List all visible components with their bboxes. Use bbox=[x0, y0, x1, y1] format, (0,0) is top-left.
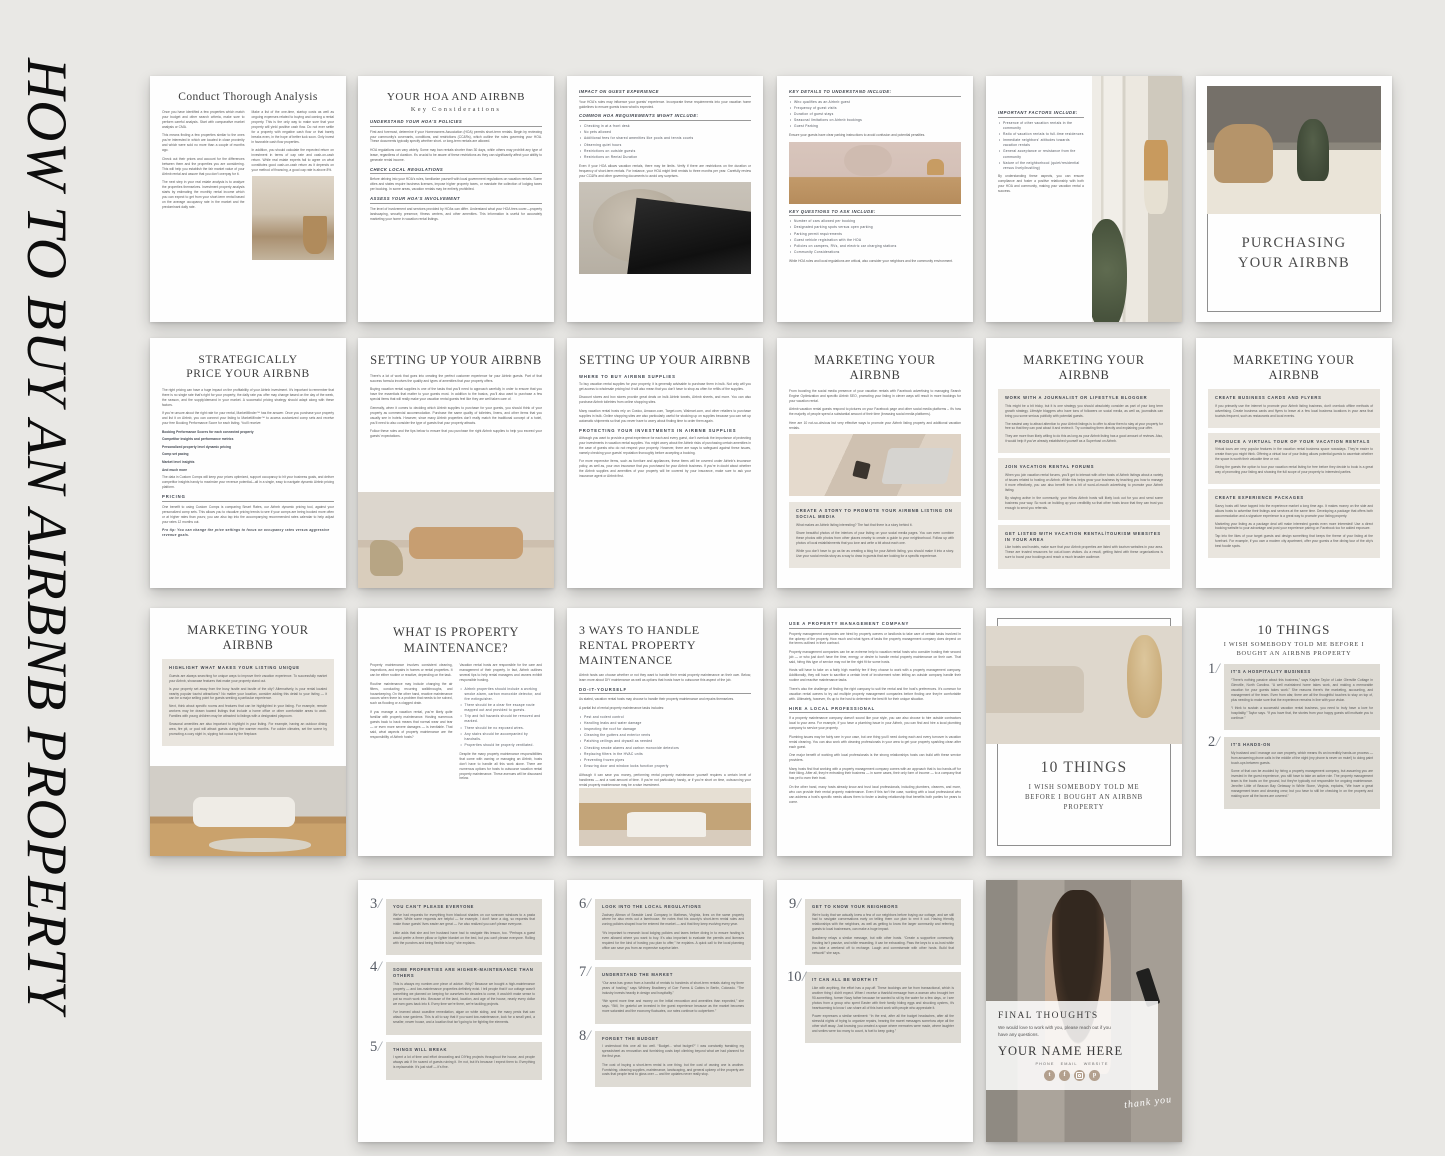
paragraph: The cost of buying a short-term rental i… bbox=[602, 1063, 744, 1078]
paragraph: Your HOA's rules may influence your gues… bbox=[579, 100, 751, 110]
contact-website-label: WEBSITE bbox=[1084, 1062, 1109, 1066]
white-sofa-photo bbox=[150, 766, 346, 856]
cover-title-block: 10 THINGS I WISH SOMEBODY TOLD ME BEFORE… bbox=[1004, 758, 1164, 813]
paragraph: If a property maintenance company doesn'… bbox=[789, 716, 961, 731]
paragraph: Many hosts find that working with a prop… bbox=[789, 767, 961, 782]
item-number: 3 bbox=[370, 896, 382, 913]
bullet-item: Checking smoke alarms and carbon monoxid… bbox=[579, 746, 751, 751]
contact-email-label: EMAIL bbox=[1061, 1062, 1078, 1066]
bullet-item: Patching ceilings and drywall as needed bbox=[579, 739, 751, 744]
numbered-item: 8 FORGET THE BUDGET I understood this on… bbox=[595, 1031, 751, 1087]
facebook-icon[interactable]: f bbox=[1059, 1070, 1070, 1081]
paragraph: Although you want to provide a great exp… bbox=[579, 436, 751, 456]
paragraph: One major benefit of working with local … bbox=[789, 753, 961, 763]
bullet-item: Preventing frozen pipes bbox=[579, 758, 751, 763]
paragraph: “We spent more time and money on the ini… bbox=[602, 999, 744, 1014]
bullet-item: Replacing filters in the HVAC units bbox=[579, 752, 751, 757]
section-heading: USE A PROPERTY MANAGEMENT COMPANY bbox=[789, 621, 961, 629]
item-number: 2 bbox=[1208, 734, 1220, 751]
paragraph: We're lucky that we actually knew a few … bbox=[812, 913, 954, 933]
bullet-item: Any stairs should be accompanied by hand… bbox=[460, 732, 543, 742]
right-column: Vacation rental hosts are responsible fo… bbox=[460, 663, 543, 785]
item-box: IT'S A HOSPITALITY BUSINESS “There's not… bbox=[1224, 664, 1380, 730]
bullet-item: Pest and rodent control bbox=[579, 715, 751, 720]
section-heading: PRICING bbox=[162, 494, 334, 502]
section-heading: KEY DETAILS TO UNDERSTAND INCLUDE: bbox=[789, 89, 961, 97]
item-heading: SOME PROPERTIES ARE HIGHER-MAINTENANCE T… bbox=[393, 967, 535, 979]
paragraph: Hosts will have to take on a fairly high… bbox=[789, 668, 961, 683]
tan-sofa-photo bbox=[358, 492, 554, 588]
left-column: Once you have identified a few propertie… bbox=[162, 110, 245, 260]
page-subtitle: I WISH SOMEBODY TOLD ME BEFORE I BOUGHT … bbox=[1208, 640, 1380, 658]
tinted-section: HIGHLIGHT WHAT MAKES YOUR LISTING UNIQUE… bbox=[162, 659, 334, 746]
page-title: SETTING UP YOUR AIRBNB bbox=[370, 353, 542, 368]
page-title: MARKETING YOUR AIRBNB bbox=[162, 623, 334, 653]
item-heading: IT CAN ALL BE WORTH IT bbox=[812, 977, 954, 983]
numbered-item: 1 IT'S A HOSPITALITY BUSINESS “There's n… bbox=[1224, 664, 1380, 730]
page-marketing-cards-tours: MARKETING YOUR AIRBNB CREATE BUSINESS CA… bbox=[1196, 338, 1392, 588]
tinted-section: CREATE EXPERIENCE PACKAGES Savvy hosts w… bbox=[1208, 489, 1380, 558]
bullet-item: Designated parking spots versus open par… bbox=[789, 225, 961, 230]
tinted-section: CREATE A STORY TO PROMOTE YOUR AIRBNB LI… bbox=[789, 502, 961, 568]
two-column-layout: Once you have identified a few propertie… bbox=[162, 110, 334, 260]
paragraph: I spent a lot of time and effort decorat… bbox=[393, 1055, 535, 1070]
bullet-item: Nature of the neighborhood (quiet/reside… bbox=[998, 161, 1084, 171]
page-marketing-blogger-forums: MARKETING YOUR AIRBNB WORK WITH A JOURNA… bbox=[986, 338, 1182, 588]
two-column-layout: Property maintenance involves consistent… bbox=[370, 663, 542, 785]
item-box: LOOK INTO THE LOCAL REGULATIONS Zachary … bbox=[595, 899, 751, 960]
bullet-item: There should be no exposed wires. bbox=[460, 726, 543, 731]
bullet-item: Seasonal limitations on Airbnb bookings bbox=[789, 118, 961, 123]
item-heading: GET TO KNOW YOUR NEIGHBORS bbox=[812, 904, 954, 910]
final-thoughts-card: FINAL THOUGHTS We would love to work wit… bbox=[986, 1001, 1158, 1090]
page-title: MARKETING YOUR AIRBNB bbox=[1208, 353, 1380, 383]
page-title: MARKETING YOUR AIRBNB bbox=[789, 353, 961, 383]
paragraph: Buying vacation rental supplies is one o… bbox=[370, 387, 542, 402]
numbered-item: 4 SOME PROPERTIES ARE HIGHER-MAINTENANCE… bbox=[386, 962, 542, 1034]
page-title: MARKETING YOUR AIRBNB bbox=[998, 353, 1170, 383]
paragraph: Seasonal amenities are also important to… bbox=[169, 722, 327, 737]
section-heading: IMPORTANT FACTORS INCLUDE: bbox=[998, 110, 1084, 118]
tinted-section: WORK WITH A JOURNALIST OR LIFESTYLE BLOG… bbox=[998, 389, 1170, 453]
page-subtitle: Key Considerations bbox=[370, 106, 542, 113]
numbered-item: 2 IT'S HANDS-ON My husband and I manage … bbox=[1224, 737, 1380, 808]
paragraph: There's a lot of work that goes into cre… bbox=[370, 374, 542, 384]
page-setting-up-supplies: SETTING UP YOUR AIRBNB WHERE TO BUY AIRB… bbox=[567, 338, 763, 588]
tinted-section: GET LISTED WITH VACATION RENTAL/TOURISM … bbox=[998, 525, 1170, 570]
snow-porch-photo bbox=[1207, 86, 1381, 214]
bold-bullet: And much more bbox=[162, 468, 334, 473]
paragraph: Make a list of the one-time, startup cos… bbox=[252, 110, 335, 145]
paragraph: Zachary Altman of Seaside Land Company i… bbox=[602, 913, 744, 928]
paragraph: The easiest way to attract attention to … bbox=[1005, 422, 1163, 432]
box-heading: HIGHLIGHT WHAT MAKES YOUR LISTING UNIQUE bbox=[169, 665, 327, 671]
paragraph: The data in Custom Comps will keep your … bbox=[162, 475, 334, 490]
beige-sofa-pampas-photo bbox=[986, 626, 1182, 744]
page-what-is-property-maintenance: WHAT IS PROPERTY MAINTENANCE? Property m… bbox=[358, 608, 554, 856]
item-box: UNDERSTAND THE MARKET “Our area has grow… bbox=[595, 967, 751, 1023]
paragraph: Property management companies are hired … bbox=[789, 632, 961, 647]
bullet-item: Handling leaks and water damage bbox=[579, 721, 751, 726]
paragraph: Property maintenance involves consistent… bbox=[370, 663, 453, 678]
paragraph: Giving the guests the option to tour you… bbox=[1215, 465, 1373, 475]
box-heading: CREATE BUSINESS CARDS AND FLYERS bbox=[1215, 395, 1373, 401]
text-block: SETTING UP YOUR AIRBNB There's a lot of … bbox=[358, 338, 554, 439]
bullet-item: Cleaning the gutters and exterior vents bbox=[579, 733, 751, 738]
paragraph: If you primarily use the internet to pro… bbox=[1215, 404, 1373, 419]
bullet-item: Ensuring door and window locks function … bbox=[579, 764, 751, 769]
tinted-section: CREATE BUSINESS CARDS AND FLYERS If you … bbox=[1208, 389, 1380, 428]
key-questions-list: Number of cars allowed per booking Desig… bbox=[789, 219, 961, 255]
paragraph: Before delving into your HOA's rules, fa… bbox=[370, 177, 542, 192]
page-important-factors: IMPORTANT FACTORS INCLUDE: Presence of o… bbox=[986, 76, 1182, 322]
item-box: YOU CAN'T PLEASE EVERYONE We've had requ… bbox=[386, 899, 542, 955]
hoa-requirements-list: Checking in at a front desk No pets allo… bbox=[579, 124, 751, 160]
paragraph: They are more than likely willing to do … bbox=[1005, 434, 1163, 444]
paragraph: A partial list of rental property mainte… bbox=[579, 706, 751, 711]
section-heading: PROTECTING YOUR INVESTMENTS IN AIRBNB SU… bbox=[579, 428, 751, 433]
paragraph: Little adds that she and her husband hav… bbox=[393, 931, 535, 946]
numbered-item: 5 THINGS WILL BREAK I spent a lot of tim… bbox=[386, 1042, 542, 1080]
pinterest-icon[interactable]: p bbox=[1089, 1070, 1100, 1081]
box-heading: JOIN VACATION RENTAL FORUMS bbox=[1005, 464, 1163, 470]
paragraph: I understood this one all too well. “Bud… bbox=[602, 1044, 744, 1059]
paragraph: Marketing your listing as a package deal… bbox=[1215, 522, 1373, 532]
page-property-management-company: USE A PROPERTY MANAGEMENT COMPANY Proper… bbox=[777, 608, 973, 856]
paragraph: Plumbing issues may be fairly rare in yo… bbox=[789, 735, 961, 750]
paragraph: Ensure your guests have clear parking in… bbox=[789, 133, 961, 138]
text-block: 3 WAYS TO HANDLE RENTAL PROPERTY MAINTEN… bbox=[567, 608, 763, 788]
bullet-item: Frequency of guest visits bbox=[789, 106, 961, 111]
paragraph: This is always my number-one piece of ad… bbox=[393, 982, 535, 1007]
paragraph: On the other hand, many hosts already kn… bbox=[789, 785, 961, 805]
paragraph: When you join vacation rental forums, yo… bbox=[1005, 473, 1163, 493]
section-heading: COMMON HOA REQUIREMENTS MIGHT INCLUDE: bbox=[579, 113, 751, 121]
paragraph: The level of involvement and services pr… bbox=[370, 207, 542, 222]
paragraph: To buy vacation rental supplies for your… bbox=[579, 382, 751, 392]
page-hoa-key-considerations: YOUR HOA AND AIRBNB Key Considerations U… bbox=[358, 76, 554, 322]
paragraph: Like hotels and hostels, make sure that … bbox=[1005, 545, 1163, 560]
paragraph: Although it can save you money, performi… bbox=[579, 773, 751, 788]
paragraph: One benefit to using Custom Comps is com… bbox=[162, 505, 334, 525]
paragraph: Savvy hosts will have tapped into the ex… bbox=[1215, 504, 1373, 519]
page-final-thoughts: FINAL THOUGHTS We would love to work wit… bbox=[986, 880, 1182, 1142]
page-title: 3 WAYS TO HANDLE RENTAL PROPERTY MAINTEN… bbox=[579, 623, 751, 668]
item-box: GET TO KNOW YOUR NEIGHBORS We're lucky t… bbox=[805, 899, 961, 965]
numbered-item: 10 IT CAN ALL BE WORTH IT Like with anyt… bbox=[805, 972, 961, 1043]
bullet-item: Number of cars allowed per booking bbox=[789, 219, 961, 224]
section-heading: ASSESS YOUR HOA'S INVOLVEMENT bbox=[370, 196, 542, 204]
box-heading: WORK WITH A JOURNALIST OR LIFESTYLE BLOG… bbox=[1005, 395, 1163, 401]
paragraph: I've learned about coastline remediation… bbox=[393, 1010, 535, 1025]
paragraph: Property management companies can be an … bbox=[789, 650, 961, 665]
paragraph: Once you have identified a few propertie… bbox=[162, 110, 245, 130]
paragraph: Generally, when it comes to deciding whi… bbox=[370, 406, 542, 426]
numbered-item: 3 YOU CAN'T PLEASE EVERYONE We've had re… bbox=[386, 899, 542, 955]
item-heading: THINGS WILL BREAK bbox=[393, 1047, 535, 1053]
bullet-item: Policies on campers, RVs, and electric c… bbox=[789, 244, 961, 249]
paragraph: Routine maintenance may include changing… bbox=[370, 682, 453, 707]
paragraph: Many vacation rental hosts rely on Costc… bbox=[579, 409, 751, 424]
text-column: IMPORTANT FACTORS INCLUDE: Presence of o… bbox=[986, 76, 1092, 322]
box-heading: PRODUCE A VIRTUAL TOUR OF YOUR VACATION … bbox=[1215, 439, 1373, 445]
text-block: MARKETING YOUR AIRBNB HIGHLIGHT WHAT MAK… bbox=[150, 608, 346, 746]
bold-bullet: Market level insights bbox=[162, 460, 334, 465]
numbered-item: 9 GET TO KNOW YOUR NEIGHBORS We're lucky… bbox=[805, 899, 961, 965]
paragraph: Follow these rules and the tips below to… bbox=[370, 429, 542, 439]
bullet-item: Observing quiet hours bbox=[579, 143, 751, 148]
box-heading: GET LISTED WITH VACATION RENTAL/TOURISM … bbox=[1005, 531, 1163, 543]
paragraph: If you're unsure about the right rate fo… bbox=[162, 411, 334, 426]
paragraph: We would love to work with you, please r… bbox=[998, 1025, 1119, 1039]
tinted-section: PRODUCE A VIRTUAL TOUR OF YOUR VACATION … bbox=[1208, 433, 1380, 484]
pro-tip: Pro tip: You can change the price settin… bbox=[162, 528, 334, 538]
item-number: 1 bbox=[1208, 661, 1220, 678]
key-details-list: Who qualifies as an Airbnb guest Frequen… bbox=[789, 100, 961, 130]
diy-tasks-list: Pest and rodent control Handling leaks a… bbox=[579, 715, 751, 770]
item-box: SOME PROPERTIES ARE HIGHER-MAINTENANCE T… bbox=[386, 962, 542, 1034]
page-title: WHAT IS PROPERTY MAINTENANCE? bbox=[382, 625, 530, 656]
page-title: STRATEGICALLY PRICE YOUR AIRBNB bbox=[179, 353, 317, 382]
page-title: Conduct Thorough Analysis bbox=[162, 91, 334, 103]
paragraph: We've had requests for everything from b… bbox=[393, 913, 535, 928]
paragraph: “I think to sustain a successful vacatio… bbox=[1231, 706, 1373, 721]
section-heading: KEY QUESTIONS TO ASK INCLUDE: bbox=[789, 209, 961, 217]
box-heading: CREATE A STORY TO PROMOTE YOUR AIRBNB LI… bbox=[796, 508, 954, 520]
living-room-photo bbox=[252, 176, 335, 260]
item-heading: YOU CAN'T PLEASE EVERYONE bbox=[393, 904, 535, 910]
section-heading: HIRE A LOCAL PROFESSIONAL bbox=[789, 706, 961, 714]
paragraph: Airbnb vacation rental guests respond to… bbox=[789, 407, 961, 417]
paragraph: Vacation rental hosts are responsible fo… bbox=[460, 663, 543, 683]
bullet-item: Guest Parking bbox=[789, 124, 961, 129]
bullet-item: Properties should be properly ventilated… bbox=[460, 743, 543, 748]
item-box: THINGS WILL BREAK I spent a lot of time … bbox=[386, 1042, 542, 1080]
instagram-icon[interactable] bbox=[1074, 1070, 1085, 1081]
section-heading: CHECK LOCAL REGULATIONS bbox=[370, 167, 542, 175]
cover-title: 10 THINGS bbox=[1004, 758, 1164, 779]
page-marketing-highlight-unique: MARKETING YOUR AIRBNB HIGHLIGHT WHAT MAK… bbox=[150, 608, 346, 856]
ebook-vertical-title: HOW TO BUY AN AIRBNB PROPERTY bbox=[14, 58, 79, 1143]
paragraph: The right pricing can have a huge impact… bbox=[162, 388, 334, 408]
paragraph: Even if your HOA allows vacation rentals… bbox=[579, 164, 751, 179]
paragraph: “Our area has grown from a handful of re… bbox=[602, 981, 744, 996]
item-box: FORGET THE BUDGET I understood this one … bbox=[595, 1031, 751, 1087]
page-cover-purchasing-your-airbnb: PURCHASING YOUR AIRBNB bbox=[1196, 76, 1392, 322]
section-heading: IMPACT ON GUEST EXPERIENCE bbox=[579, 89, 751, 97]
phone-laptop-photo bbox=[789, 434, 961, 496]
cover-subtitle: I WISH SOMEBODY TOLD ME BEFORE I BOUGHT … bbox=[1017, 783, 1151, 814]
bullet-item: Checking in at a front desk bbox=[579, 124, 751, 129]
bullet-item: Who qualifies as an Airbnb guest bbox=[789, 100, 961, 105]
page-impact-on-guest-experience: IMPACT ON GUEST EXPERIENCE Your HOA's ru… bbox=[567, 76, 763, 322]
item-box: IT'S HANDS-ON My husband and I manage ou… bbox=[1224, 737, 1380, 808]
bullet-item: Restrictions on outside guests bbox=[579, 149, 751, 154]
paragraph: By understanding these aspects, you can … bbox=[998, 174, 1084, 194]
cover-title-block: PURCHASING YOUR AIRBNB bbox=[1207, 234, 1381, 273]
page-10-things-items-3-5: 3 YOU CAN'T PLEASE EVERYONE We've had re… bbox=[358, 880, 554, 1142]
paragraph: There's also the challenge of finding th… bbox=[789, 687, 961, 702]
page-10-things-items-6-8: 6 LOOK INTO THE LOCAL REGULATIONS Zachar… bbox=[567, 880, 763, 1142]
page-key-details-parking: KEY DETAILS TO UNDERSTAND INCLUDE: Who q… bbox=[777, 76, 973, 322]
split-layout: IMPORTANT FACTORS INCLUDE: Presence of o… bbox=[986, 76, 1182, 322]
paragraph: Power expresses a similar sentiment: “In… bbox=[812, 1014, 954, 1034]
section-heading: DO-IT-YOURSELF bbox=[579, 687, 751, 695]
cover-title: PURCHASING YOUR AIRBNB bbox=[1228, 234, 1360, 273]
paragraph: For more expensive items, such as furnit… bbox=[579, 459, 751, 479]
bullet-item: Restrictions on Rental Duration bbox=[579, 155, 751, 160]
paragraph: This might be a bit tricky, but it is on… bbox=[1005, 404, 1163, 419]
item-number: 7 bbox=[579, 964, 591, 981]
paragraph: First and foremost, determine if your Ho… bbox=[370, 130, 542, 145]
page-10-things-items-1-2: 10 THINGS I WISH SOMEBODY TOLD ME BEFORE… bbox=[1196, 608, 1392, 856]
paragraph: Check out their prices and account for t… bbox=[162, 157, 245, 177]
twitter-icon[interactable]: t bbox=[1044, 1070, 1055, 1081]
bullet-item: There should be a clear fire escape rout… bbox=[460, 703, 543, 713]
section-heading: WHERE TO BUY AIRBNB SUPPLIES bbox=[579, 374, 751, 379]
item-heading: LOOK INTO THE LOCAL REGULATIONS bbox=[602, 904, 744, 910]
bedroom-photo bbox=[579, 788, 751, 846]
item-box: IT CAN ALL BE WORTH IT Like with anythin… bbox=[805, 972, 961, 1043]
paragraph: Is your property set away from the busy … bbox=[169, 687, 327, 702]
bullet-item: Immediate neighbors' attitudes towards v… bbox=[998, 138, 1084, 148]
page-title: 10 THINGS bbox=[1208, 622, 1380, 638]
page-cover-10-things: 10 THINGS I WISH SOMEBODY TOLD ME BEFORE… bbox=[986, 608, 1182, 856]
page-3-ways-maintenance: 3 WAYS TO HANDLE RENTAL PROPERTY MAINTEN… bbox=[567, 608, 763, 856]
responsible-hosting-list: Airbnb properties should include a worki… bbox=[460, 687, 543, 749]
important-factors-list: Presence of other vacation rentals in th… bbox=[998, 121, 1084, 171]
paragraph: The next step in your real estate analys… bbox=[162, 180, 245, 210]
bullet-item: Ratio of vacation rentals to full-time r… bbox=[998, 132, 1084, 137]
bullet-item: Trip and fall hazards should be removed … bbox=[460, 714, 543, 724]
bullet-item: Parking permit requirements bbox=[789, 232, 961, 237]
paragraph: Share beautiful photos of the interiors … bbox=[796, 531, 954, 546]
paragraph: Tap into the likes of your target guests… bbox=[1215, 534, 1373, 549]
sideboard-photo bbox=[789, 142, 961, 204]
item-heading: IT'S HANDS-ON bbox=[1231, 742, 1373, 748]
paragraph: Next, think about specific rooms and fea… bbox=[169, 704, 327, 719]
numbered-item: 6 LOOK INTO THE LOCAL REGULATIONS Zachar… bbox=[595, 899, 751, 960]
bullet-item: No pets allowed bbox=[579, 130, 751, 135]
bullet-item: Duration of guest stays bbox=[789, 112, 961, 117]
paragraph: If you manage a vacation rental, you're … bbox=[370, 710, 453, 740]
item-number: 10 bbox=[787, 969, 806, 986]
item-number: 8 bbox=[579, 1028, 591, 1045]
paragraph: HOA regulations can vary widely. Some ma… bbox=[370, 148, 542, 163]
item-number: 9 bbox=[789, 896, 801, 913]
item-heading: IT'S A HOSPITALITY BUSINESS bbox=[1231, 669, 1373, 675]
bold-bullet: Booking Performance Scores for each conn… bbox=[162, 430, 334, 435]
paragraph: This means finding a few properties simi… bbox=[162, 133, 245, 153]
item-number: 6 bbox=[579, 896, 591, 913]
paragraph: While you don't have to go as far as cre… bbox=[796, 549, 954, 559]
bold-bullet: Competitor insights and performance metr… bbox=[162, 437, 334, 442]
paragraph: “It's important to research local lodgin… bbox=[602, 931, 744, 951]
bullet-item: Airbnb properties should include a worki… bbox=[460, 687, 543, 702]
item-number: 5 bbox=[370, 1039, 382, 1056]
paragraph: Discount stores and box stores provide g… bbox=[579, 395, 751, 405]
paragraph: “There's nothing passive about this busi… bbox=[1231, 678, 1373, 703]
item-heading: FORGET THE BUDGET bbox=[602, 1036, 744, 1042]
tinted-section: JOIN VACATION RENTAL FORUMS When you joi… bbox=[998, 458, 1170, 519]
bullet-item: General acceptance or resistance from th… bbox=[998, 149, 1084, 159]
bold-bullet: Comp set pacing bbox=[162, 452, 334, 457]
page-setting-up-intro: SETTING UP YOUR AIRBNB There's a lot of … bbox=[358, 338, 554, 588]
bullet-item: Inspecting the roof for damage bbox=[579, 727, 751, 732]
paragraph: In addition, you should calculate the ex… bbox=[252, 148, 335, 173]
paragraph: Some of that can be avoided by hiring a … bbox=[1231, 769, 1373, 799]
item-number: 4 bbox=[370, 959, 382, 976]
contact-phone-label: PHONE bbox=[1035, 1062, 1054, 1066]
page-title: SETTING UP YOUR AIRBNB bbox=[579, 353, 751, 368]
paragraph: As stated, vacation rental hosts may cho… bbox=[579, 697, 751, 702]
social-icons-row: t f p bbox=[998, 1070, 1146, 1081]
page-conduct-thorough-analysis: Conduct Thorough Analysis Once you have … bbox=[150, 76, 346, 322]
contact-line: PHONE EMAIL WEBSITE bbox=[998, 1062, 1146, 1066]
paragraph: What makes an Airbnb listing interesting… bbox=[796, 523, 954, 528]
item-heading: UNDERSTAND THE MARKET bbox=[602, 972, 744, 978]
final-thoughts-heading: FINAL THOUGHTS bbox=[998, 1011, 1146, 1021]
section-heading: UNDERSTAND YOUR HOA'S POLICIES bbox=[370, 119, 542, 127]
author-name-placeholder: YOUR NAME HERE bbox=[998, 1044, 1146, 1059]
paragraph: By staying active in the community, your… bbox=[1005, 496, 1163, 511]
bold-bullet: Personalized property level dynamic pric… bbox=[162, 445, 334, 450]
paragraph: Despite the many property maintenance re… bbox=[460, 752, 543, 782]
bullet-item: Community Considerations bbox=[789, 250, 961, 255]
box-heading: CREATE EXPERIENCE PACKAGES bbox=[1215, 495, 1373, 501]
page-title: YOUR HOA AND AIRBNB bbox=[370, 91, 542, 103]
paragraph: Here are 10 not-so-obvious but very effe… bbox=[789, 421, 961, 431]
paragraph: While HOA rules and local regulations ar… bbox=[789, 259, 961, 264]
page-strategically-price: STRATEGICALLY PRICE YOUR AIRBNB The righ… bbox=[150, 338, 346, 588]
right-column: Make a list of the one-time, startup cos… bbox=[252, 110, 335, 260]
bullet-item: Additional fees for shared amenities lik… bbox=[579, 136, 751, 141]
paragraph: Virtual tours are very popular features … bbox=[1215, 447, 1373, 462]
bullet-item: Guest vehicle registration with the HOA bbox=[789, 238, 961, 243]
page-10-things-items-9-10: 9 GET TO KNOW YOUR NEIGHBORS We're lucky… bbox=[777, 880, 973, 1142]
paragraph: From boosting the social media presence … bbox=[789, 389, 961, 404]
bullet-item: Presence of other vacation rentals in th… bbox=[998, 121, 1084, 131]
paragraph: Guests are always searching for unique w… bbox=[169, 674, 327, 684]
left-column: Property maintenance involves consistent… bbox=[370, 663, 453, 785]
page-marketing-intro: MARKETING YOUR AIRBNB From boosting the … bbox=[777, 338, 973, 588]
paragraph: Like with anything, the effort has a pay… bbox=[812, 986, 954, 1011]
numbered-item: 7 UNDERSTAND THE MARKET “Our area has gr… bbox=[595, 967, 751, 1023]
paragraph: Bradberry relays a similar message, but … bbox=[812, 936, 954, 956]
marble-table-photo bbox=[579, 182, 751, 274]
window-room-photo bbox=[1092, 76, 1182, 322]
paragraph: Airbnb hosts can choose whether or not t… bbox=[579, 673, 751, 683]
paragraph: My husband and I manage our own property… bbox=[1231, 751, 1373, 766]
